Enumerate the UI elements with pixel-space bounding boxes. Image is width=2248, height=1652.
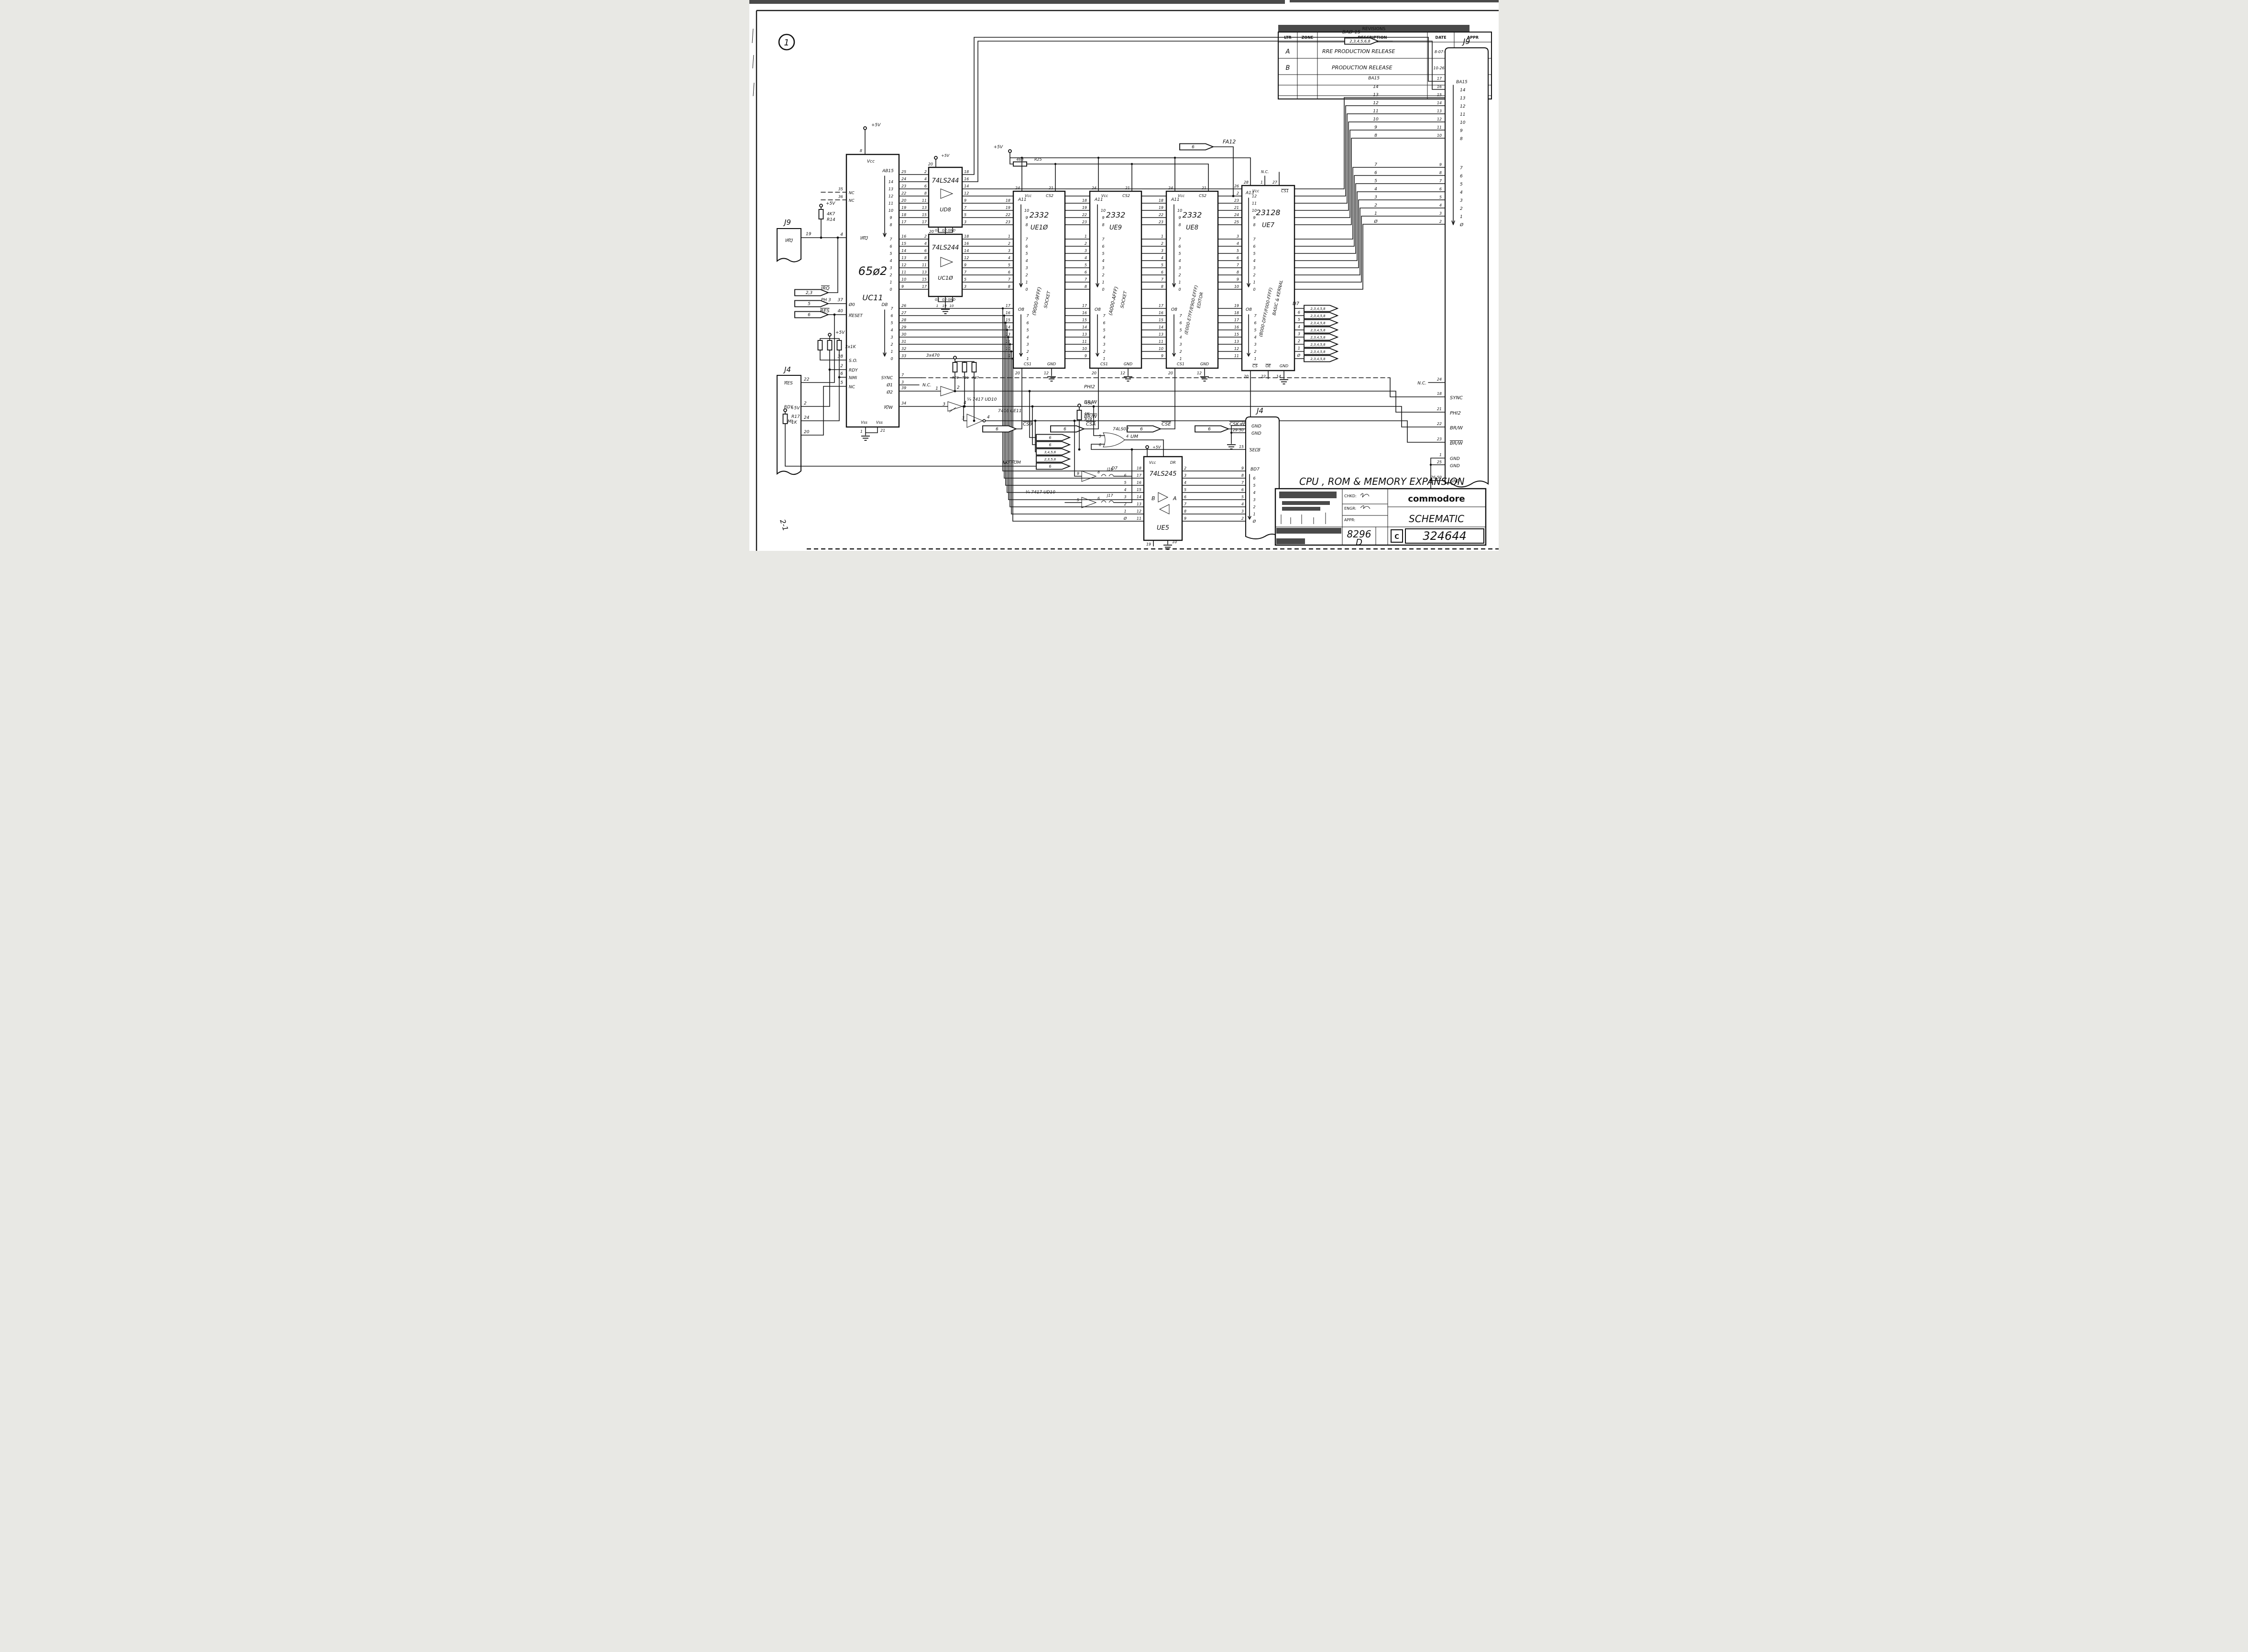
j4r-bd-bits-1: 5 [1253,483,1255,488]
ue8-lo-pins: 12345678 [1161,234,1164,289]
ue8-a-lo-bits-2: 5 [1178,252,1181,256]
cpu-nc-pin: 35 [838,187,843,191]
ud8-out-pins: 181614129753 [964,170,969,224]
cpu-ab-hi-pins-0: 25 [901,170,906,174]
ue8-a-hi-bits-0: 10 [1177,208,1182,213]
ud8-in-pins-4: 11 [922,198,927,203]
ud8-out-pins-5: 7 [964,206,967,210]
ud8-vcc-pin: 20 [928,162,933,166]
jumper-j17: J17 [1106,493,1113,498]
ue7-hi-pins-0: 26 [1234,184,1239,188]
ue10-a-hi-bits-2: 8 [1025,223,1028,227]
j9r-lo-pins-3: 6 [1439,187,1442,191]
j9r-brwn-pin: 23 [1437,437,1442,441]
ue10-o-label: O8 [1018,307,1024,312]
rp1k-value: 3x1K [845,345,856,350]
ue8-a-lo-bits-5: 2 [1178,273,1181,277]
ue8-lo-pins-5: 6 [1161,270,1163,274]
ue9-lo-pins-6: 7 [1085,277,1087,282]
ba-flag-tag: 2,3,4,5,6,8 [1349,39,1370,44]
revisions-banner: REVISIONS [1362,27,1386,32]
j4r-sel-pin: 15 [1239,445,1244,449]
ue8-out-pins-6: 10 [1159,347,1163,351]
ue10-hi-pins-0: 18 [1006,198,1010,203]
uc10-g-pins: 11910 [936,304,954,308]
ue10-a-hi-bits-0: 10 [1024,208,1029,213]
ue7-out-pins: 1918171615131211 [1234,304,1239,358]
ud10b-g2-out: 6 [1097,496,1100,501]
ud8-in-pins-7: 17 [922,220,927,224]
ue7-lo-pins-5: 8 [1237,270,1239,274]
j9r-inner-lo-5: 2 [1460,207,1463,211]
j4r-bd-pins-2: 7 [1241,481,1244,485]
j4r-bd-label: BD7 [1250,467,1260,472]
ue9-hi-pins-1: 19 [1082,206,1087,210]
ud8-ref: UD8 [940,207,951,213]
sheet-title: CPU , ROM & MEMORY EXPANSION [1299,476,1465,487]
r24-value: 1K [1085,412,1090,416]
ud10b-g2-in: 5 [1077,498,1079,502]
ue5-b: B [1151,495,1155,502]
r14-5v: +5V [826,201,835,206]
ue10-out-pins-5: 11 [1006,339,1010,344]
ue8-o-bits-4: 3 [1179,342,1182,347]
ue10-o-bits-3: 4 [1026,335,1029,339]
ue10-a-label: A11 [1018,197,1027,202]
r17-no-rom: +5V R17 1K NO ROM [783,406,1037,466]
j9r-hi-pins-4: 13 [1437,109,1442,113]
j9r-line-hi-bits-0: 14 [1373,85,1379,89]
ue7-lo-pins-4: 7 [1237,263,1239,267]
j9r-sync: SYNC [1450,395,1463,401]
ue11-label: 7406 UE11 [998,409,1022,414]
cpu-reset-pin: 40 [838,309,844,314]
r24-5v: +5V [1085,401,1093,405]
ue8-out-pins-7: 9 [1161,354,1163,358]
cpu-part: 65ø2 [858,264,888,278]
j9l-net: IRQ [785,239,793,243]
ud8-in-pins-3: 8 [924,191,927,196]
ue7-lo-bits-7: 0 [1253,287,1255,292]
cpu-ab-hi-pins: 2524232220191817 [901,170,907,224]
j4l-pin2: 2 [804,401,807,406]
ue7-cs1-pin: 27 [1272,180,1278,185]
schematic-canvas: 1 2-1 REVISIONS LTR ZONE DESCRIPTION DAT… [749,0,1499,551]
cpu-ab-hi-bits-1: 13 [888,187,893,191]
d-flag-tag: 2,3,4,5,8 [1310,343,1326,347]
j9r-ref: J9 [1462,37,1470,46]
d-bus-bits-1: 5 [1298,317,1300,322]
ue5-left-bits-4: 2 [1124,502,1126,506]
ue10-lo-pins-6: 7 [1008,277,1011,282]
misc-flag: 6 [1049,443,1051,447]
cpu-so-pin: 38 [838,354,844,359]
j9r-inner-lo-3: 4 [1460,190,1463,195]
ue9-out-pins-2: 15 [1082,318,1087,322]
ue8-o-bits-5: 2 [1179,350,1182,354]
ue10-hi-pins-1: 19 [1006,206,1010,210]
cpu-db-pins-3: 29 [901,325,906,329]
ue10-o-bits-6: 1 [1026,357,1029,361]
cpu-db-pins-7: 33 [901,354,906,358]
j9l-pin: 19 [806,232,811,237]
cpu-phi0-label: Ø0 [848,302,855,307]
j9r-line-lo-bits-0: 7 [1374,163,1377,167]
ue10-out-pins-0: 17 [1006,304,1011,308]
cpu-sync-pin: 7 [901,373,904,377]
ue5-left-pins-3: 15 [1137,488,1141,492]
ue9-cs1-pin: 20 [1092,371,1097,375]
ue5-d7-label: D7 [1111,466,1118,471]
ud10a-label: ¼ 7417 UD10 [967,397,997,402]
ue5-dr: DR [1170,460,1176,465]
j4r-bd-pins-3: 6 [1241,488,1244,492]
ue8-a-lo-bits-1: 6 [1178,244,1181,249]
ud10b-label: ¼ 7417 UD10 [1026,490,1056,495]
ue9-hi-pins: 18192223 [1082,198,1087,224]
cpu-phi1-pin: 3 [901,380,904,384]
ue10-out-pins-2: 15 [1006,318,1010,322]
ue7-hi-pins-2: 23 [1234,198,1239,203]
ue9-lo-pins-4: 5 [1085,263,1087,267]
ud8-g-labels-1: G2 [942,229,947,232]
ue7-o-bits-2: 5 [1254,328,1256,332]
j4r-bd-bits-3: 3 [1253,498,1255,502]
plus5v-label: +5V [994,145,1003,150]
ue10-out-pins-3: 14 [1006,325,1010,329]
d-flag-tag: 2,3,4,5,8 [1310,336,1326,339]
ue5-a: A [1173,495,1177,502]
j9r-lo-pins-0: 9 [1439,163,1442,167]
um-out: 4 [1126,434,1129,438]
ue10-a-lo-bits-7: 0 [1025,287,1028,292]
ue9-out-pins-6: 10 [1082,347,1087,351]
ue10-lo-pins-3: 4 [1008,256,1010,260]
cpu-vss-pin1: 1 [860,429,863,434]
ue10-lo-pins-0: 1 [1008,234,1010,239]
j9r-lo-pins-2: 7 [1439,179,1442,183]
ue7-hi-pins-4: 24 [1234,213,1239,217]
ue9-lo-pins-7: 8 [1085,284,1087,289]
ud10a-g1-out: 2 [957,385,960,390]
ue7-hi-pins: 26223212425 [1234,184,1239,224]
ue9-a-lo-bits-4: 3 [1102,266,1104,270]
net-res: RES [820,308,830,314]
ud8-out-pins-6: 5 [964,213,966,217]
j9r-hi-pins-7: 10 [1437,133,1442,138]
cpu-vcc-label: Vcc [867,159,875,164]
ue9-lo-pins-5: 6 [1085,270,1087,274]
cpu-db-pins-0: 26 [901,304,906,308]
ue8-out-pins-4: 13 [1159,332,1163,337]
ud8-in-pins: 246811131517 [922,170,927,224]
cpu-5v: +5V [871,123,881,128]
ue7-lo-pins-2: 5 [1237,249,1239,253]
ue10-out-pins-1: 16 [1006,311,1010,315]
ue5-left-pins-1: 17 [1137,473,1142,478]
ue10-lo-pins-5: 6 [1008,270,1010,274]
um-in1: 5 [1099,434,1101,438]
cpu-ab-lo-bits-3: 4 [889,259,892,263]
d-bus-bits-5: 1 [1298,346,1300,350]
j9l-ref: J9 [783,218,791,227]
j4l-pin24: 24 [804,416,810,420]
misc-flag: 6 [1049,464,1051,469]
ud10b-g1-in: 9 [1077,471,1079,476]
cpu-db-pins-5: 31 [901,339,906,344]
cpu-ab-lo-pins: 161514131211109 [901,234,906,289]
ue9-o-bits-1: 6 [1103,321,1105,325]
j9r-line-hi-bits-1: 13 [1373,93,1379,98]
ue5-right-pins-5: 7 [1184,502,1187,506]
ue8-vcc: Vcc [1178,194,1185,198]
ue7-out-pins-4: 15 [1234,332,1239,337]
j9r-inner-lo-1: 6 [1460,174,1463,179]
cpu-vss-pin2: 21 [880,428,885,433]
misc-flag: 2,3,5,6 [1044,458,1056,461]
j9r-lo-pins-5: 4 [1439,203,1442,208]
ue7-part: 23128 [1256,208,1281,217]
ue11-out: 4 [987,415,990,420]
ue9-a-lo-bits-2: 5 [1102,252,1104,256]
ue10-out-pins-6: 10 [1006,347,1010,351]
connector-j9-left: J9 IRQ 19 +5V 4K7 R14 [777,201,846,262]
j9r-hi-pins-1: 16 [1437,85,1442,89]
ue7-lo-pins-1: 4 [1237,241,1239,246]
j9r-lo-pins: 98765432 [1439,163,1442,224]
ue7-lo-bits-6: 1 [1253,280,1255,284]
uc10-out-pins-3: 12 [964,256,969,260]
misc-flag: 6 [1049,436,1051,440]
cpu-phi2-label: Ø2 [886,390,893,395]
j9r-line-hi-bits-2: 12 [1373,101,1379,106]
ue5-left-pins-0: 18 [1137,466,1141,470]
ue10-lo-pins: 12345678 [1008,234,1011,289]
ue8-hi-pins: 18192223 [1159,198,1163,224]
ue9-o-bits-6: 1 [1103,357,1105,361]
j4r-bd-pins-1: 8 [1241,473,1244,478]
cpu-nmi-label: NMI [849,376,857,381]
j9r-line-lo-bits-5: 2 [1374,203,1377,208]
ue10-lo-pins-7: 8 [1008,284,1010,289]
no-rom-label: NO ROM [1003,460,1021,465]
cpu-rdy-label: RDY [849,368,858,373]
j4r-gnd1-pin: 1 [1241,421,1244,425]
j9r-line-lo-bits-7: Ø [1373,219,1378,224]
j9r-inner-hi-3: 11 [1460,112,1465,117]
ue11-in: 3 [962,416,965,421]
j9r-lo-pins-7: 2 [1439,219,1442,224]
uc10-in-pins-2: 6 [924,249,927,253]
ic-23128-ue7: 23128 UE7 (B000-DFFF/F000-FFFF) BASIC & … [1242,170,1294,384]
cpu-ab-hi-pins-3: 22 [901,191,906,196]
ue7-cs: CS [1252,364,1258,368]
ue7-lo-pins-6: 9 [1237,277,1239,282]
j9r-nc-label: N.C. [1417,381,1426,386]
ue10-o-bits-1: 6 [1026,321,1029,325]
r470-refs-0: R20 [952,376,959,380]
cpu-ab-hi-pins-2: 23 [901,184,906,188]
page-number: 1 [784,38,789,48]
ue8-a-label: A11 [1171,197,1180,202]
cpu-ab-lo-pins-4: 12 [901,263,906,267]
cs9-tag: 6 [996,427,998,432]
ue10-a-lo-bits-6: 1 [1025,280,1028,284]
j9r-hi-pins-0: 17 [1437,77,1442,81]
cpu-irq-pin: 4 [840,232,843,237]
cpu-db-pins-2: 28 [901,318,906,322]
uc10-out-pins-5: 7 [964,270,967,274]
uc10-in-pins-0: 2 [924,234,927,239]
ud8-out-pins-0: 18 [964,170,969,174]
cpu-db-pins-1: 27 [901,311,907,315]
cpu-ab-hi-bits-6: 8 [889,223,892,227]
page-number-circle: 1 [779,34,794,50]
ue5-5v: +5V [1152,445,1161,449]
r24-ref: R24 [1085,417,1092,422]
ue9-out-pins-5: 11 [1082,339,1087,344]
ue9-cs1: CS1 [1100,362,1108,366]
ud8-g-labels-2: GND [948,229,956,232]
ic-2332-ue8: 2332 UE8 (E000-E7FF/E900-EFFF) EDITOR A1… [1166,186,1218,381]
j9r-line-hi-bits-5: 9 [1374,125,1377,130]
cpu-db-bits-3: 4 [890,328,893,332]
ue9-hi-pins-2: 22 [1082,213,1087,217]
ue9-part: 2332 [1106,210,1126,219]
j9r-gnd1-pin: 1 [1439,453,1442,457]
ue5-left-bits-1: 5 [1124,481,1126,485]
j4r-bd-pins-5: 4 [1241,502,1244,506]
ue9-hi-pins-0: 18 [1082,198,1087,203]
cpu-ab-lo-pins-5: 11 [901,270,906,274]
ue8-o-bits-1: 6 [1179,321,1182,325]
ue7-hi-pins-5: 25 [1234,220,1239,224]
ue10-a-hi-bits-1: 9 [1025,216,1028,220]
ue5-gnd-pin: 10 [1172,540,1177,544]
ue9-o-bits-5: 2 [1103,350,1105,354]
d-flag-tag: 2,3,4,5,8 [1310,350,1326,354]
uc10-g-pins-2: 10 [950,304,954,308]
j9r-line-hi-bits-4: 10 [1373,117,1379,122]
cpu-phi0-pin: 37 [838,298,844,303]
pullups-3x470: 3x470 R20R21R27 [926,353,979,422]
j4r-bd-pins-6: 3 [1241,509,1244,514]
ue10-out-pins: 171615141311109 [1006,304,1011,358]
rev-header-date: DATE [1435,35,1446,40]
r25-ref: R25 [1034,157,1042,162]
j4r-ref: J4 [1255,406,1263,415]
ue8-o-label: O8 [1171,307,1177,312]
ue10-hi-pins: 18192223 [1006,198,1010,224]
ue9-o-label: O8 [1095,307,1101,312]
ud10a-g2-out: 4 [964,401,966,405]
j9r-line-hi-bits-3: 11 [1373,109,1378,114]
ue8-lo-pins-7: 8 [1161,284,1163,289]
j9r-gnd2: GND [1450,464,1460,469]
ue9-out-pins-7: 9 [1085,354,1087,358]
cpu-ab-hi-pins-6: 18 [901,213,906,217]
ue8-out-pins-3: 14 [1159,325,1163,329]
ue7-out-pins-7: 11 [1234,354,1239,358]
ue10-ref: UE1Ø [1031,224,1048,231]
uc10-out-pins: 181614129753 [964,234,969,289]
ud8-out-pins-1: 16 [964,177,969,181]
ue10-cs2: CS2 [1046,194,1053,198]
brand-logo: commodore [1408,494,1465,504]
j9r-lo-pins-1: 8 [1439,171,1442,175]
ue7-out-pins-3: 16 [1234,325,1239,329]
ue8-out-pins-1: 16 [1159,311,1163,315]
ue10-cs2-pin: 21 [1049,186,1053,190]
ud8-out-pins-3: 12 [964,191,969,196]
j4l-pin20: 20 [804,430,810,435]
ud8-in-pins-1: 4 [924,177,927,181]
ud10a-g1-in: 1 [935,386,938,391]
cpu-ab-lo-bits-5: 2 [889,273,892,277]
ue7-lo-pins-3: 6 [1237,256,1239,260]
ue5-left-pins-6: 12 [1137,509,1141,514]
uc10-g-labels: G1G2GND [935,298,956,302]
ue10-hi-pins-2: 22 [1006,213,1010,217]
cpu-db-pins-6: 32 [901,347,906,351]
uc10-vcc-pin: 20 [929,230,934,234]
cpu-ab-hi-pins-5: 19 [901,206,906,210]
j4l-res: RES [784,381,793,386]
j9r-line-lo-bits-4: 3 [1374,195,1377,200]
uc10-in-pins-3: 8 [924,256,927,260]
ud8-in-pins-0: 2 [924,170,927,174]
ue7-lo-bits-3: 4 [1253,259,1255,263]
ue9-hi-pins-3: 23 [1082,220,1087,224]
ue9-a-lo-bits-1: 6 [1102,244,1104,249]
left-arrow-flags: 2,3 5 6 IRQ PH 3 RES [795,237,846,318]
uc10-out-pins-7: 3 [964,284,966,289]
j4r-gnd1: GND [1251,424,1261,429]
ue9-a-lo-bits-3: 4 [1102,259,1104,263]
ue10-a-lo-bits-4: 3 [1025,266,1028,270]
ue7-lo-pins: 345678910 [1234,234,1239,289]
um-part: 74LS02 [1113,427,1129,432]
fa12-net: FA12 [1223,139,1236,145]
ue5-right-pins-1: 3 [1184,473,1186,478]
j9r-brw-pin: 22 [1437,422,1442,426]
d-flag-tag: 2,3,4,5,8 [1310,321,1326,325]
ue10-lo-pins-1: 2 [1008,241,1010,246]
ue10-hi-pins-3: 23 [1006,220,1010,224]
uc10-in-pins-6: 15 [922,277,927,282]
j9r-inner-hi-4: 10 [1460,120,1466,125]
ue5-left-bits-0: 6 [1124,473,1126,478]
j9r-line-lo-bits-3: 4 [1374,187,1377,192]
cskb-net: CSK+B [1229,422,1246,427]
cpu-nc-pin: 36 [838,195,843,199]
ue9-o-bits-2: 5 [1103,328,1105,332]
uc10-in-pins-7: 17 [922,284,927,289]
ue8-vcc-pin: 24 [1168,186,1173,190]
ic-2332-ue10: 2332 UE1Ø (9000-9FFF) SOCKET A11 1098 76… [1013,186,1065,381]
ue9-lo-pins-0: 1 [1085,234,1087,239]
ue7-o-bits-5: 2 [1254,350,1256,354]
ue7-gnd-pin: 14 [1276,374,1281,379]
j9r-brw-inv: BR/W [1450,441,1463,446]
ue8-lo-pins-0: 1 [1161,234,1163,239]
uc10-out-pins-1: 16 [964,241,969,246]
j4r-bd-bits-4: 2 [1253,505,1255,509]
d-flag-tag: 2,3,4,5,8 [1310,357,1326,361]
j4l-ref: J4 [783,365,791,374]
ue7-gnd: GND [1280,364,1288,368]
ue7-oe-pin: 22 [1261,374,1266,379]
